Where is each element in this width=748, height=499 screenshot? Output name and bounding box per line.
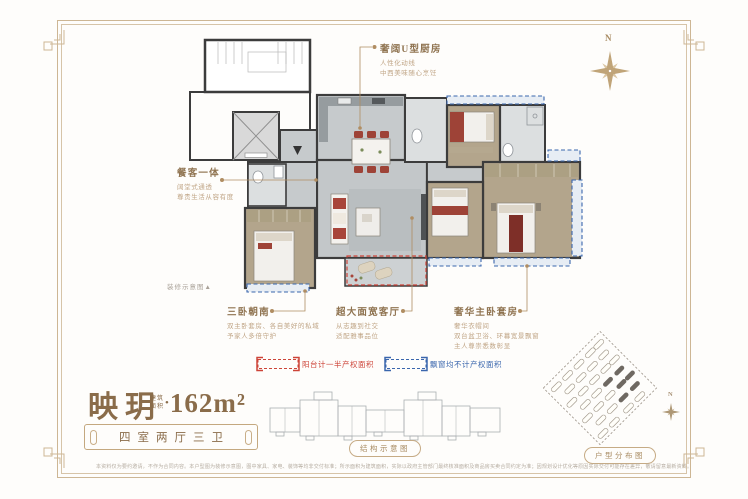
callout-master-line: 主人尊崇悉数彰显 bbox=[454, 342, 539, 352]
bed-master bbox=[491, 203, 541, 253]
callout-living-title: 超大面宽客厅 bbox=[336, 304, 400, 318]
area-block: 建筑面积 • 162m² bbox=[150, 388, 246, 419]
floorplan-page: N N 奢阔U型厨房 人性化动线 中西美味随心烹饪 餐客一体 阔堂式通透 尊贵生… bbox=[0, 0, 748, 499]
callout-dining-line: 阔堂式通透 bbox=[177, 183, 234, 193]
callout-master: 奢华主卧套房 奢华衣帽间 双台盆卫浴、环幕宽景飘窗 主人尊崇悉数彰显 bbox=[454, 304, 539, 351]
legend-red-swatch bbox=[257, 358, 299, 371]
callout-bedrooms-line: 双主卧套房、各自美好的私域 bbox=[227, 322, 319, 332]
legend-blue-label: 飘窗均不计产权面积 bbox=[430, 359, 502, 370]
compass-north-label: N bbox=[605, 33, 612, 43]
caption-structure: 结构示意图 bbox=[349, 440, 421, 457]
callout-bedrooms-line: 予家人多倍守护 bbox=[227, 332, 319, 342]
callout-dining-line: 尊贵生活从容有度 bbox=[177, 193, 234, 203]
spec-box-left-cap bbox=[90, 430, 97, 445]
callout-kitchen-line: 中西美味随心烹饪 bbox=[380, 69, 442, 79]
compass-icon bbox=[590, 51, 630, 91]
deco-note: 装修示意图▲ bbox=[167, 281, 212, 291]
callout-kitchen-title: 奢阔U型厨房 bbox=[380, 41, 442, 55]
callout-bedrooms-title: 三卧朝南 bbox=[227, 304, 319, 318]
siteplan-diagram bbox=[543, 331, 656, 444]
spec-box-right-cap bbox=[245, 430, 252, 445]
site-compass-north-label: N bbox=[668, 391, 673, 398]
callout-master-title: 奢华主卧套房 bbox=[454, 304, 539, 318]
site-compass-icon bbox=[662, 403, 680, 421]
callout-living-line: 适配雅事品位 bbox=[336, 332, 400, 342]
area-value: 162m² bbox=[170, 388, 246, 419]
callout-living-line: 从志趣到社交 bbox=[336, 322, 400, 332]
spec-text: 四室两厅三卫 bbox=[112, 429, 230, 445]
disclaimer: 本资料仅为要约邀请，不作为合同内容。本户型图为装修示意图，图中家具、家电、装饰等… bbox=[96, 463, 658, 470]
callout-dining-title: 餐客一体 bbox=[177, 165, 234, 179]
legend-red-label: 阳台计一半产权面积 bbox=[302, 359, 374, 370]
callout-kitchen-line: 人性化动线 bbox=[380, 59, 442, 69]
bed-middle bbox=[432, 188, 468, 236]
callout-bedrooms: 三卧朝南 双主卧套房、各自美好的私域 予家人多倍守护 bbox=[227, 304, 319, 342]
caption-siteplan: 户型分布图 bbox=[584, 447, 656, 464]
structure-diagram bbox=[270, 392, 500, 440]
legend-blue-swatch bbox=[385, 358, 427, 371]
callout-dining: 餐客一体 阔堂式通透 尊贵生活从容有度 bbox=[177, 165, 234, 203]
dining-table bbox=[352, 131, 390, 173]
callout-living: 超大面宽客厅 从志趣到社交 适配雅事品位 bbox=[336, 304, 400, 342]
bathroom-1 bbox=[405, 98, 447, 162]
bed-bottom-left bbox=[254, 231, 294, 281]
callout-master-line: 双台盆卫浴、环幕宽景飘窗 bbox=[454, 332, 539, 342]
disclaimer-wrap: 本资料仅为要约邀请，不作为合同内容。本户型图为装修示意图，图中家具、家电、装饰等… bbox=[96, 463, 748, 473]
spec-box: 四室两厅三卫 bbox=[84, 424, 258, 450]
area-bullet: • bbox=[165, 397, 169, 409]
callout-kitchen: 奢阔U型厨房 人性化动线 中西美味随心烹饪 bbox=[380, 41, 442, 79]
area-label: 建筑面积 bbox=[150, 396, 164, 411]
callout-master-line: 奢华衣帽间 bbox=[454, 322, 539, 332]
